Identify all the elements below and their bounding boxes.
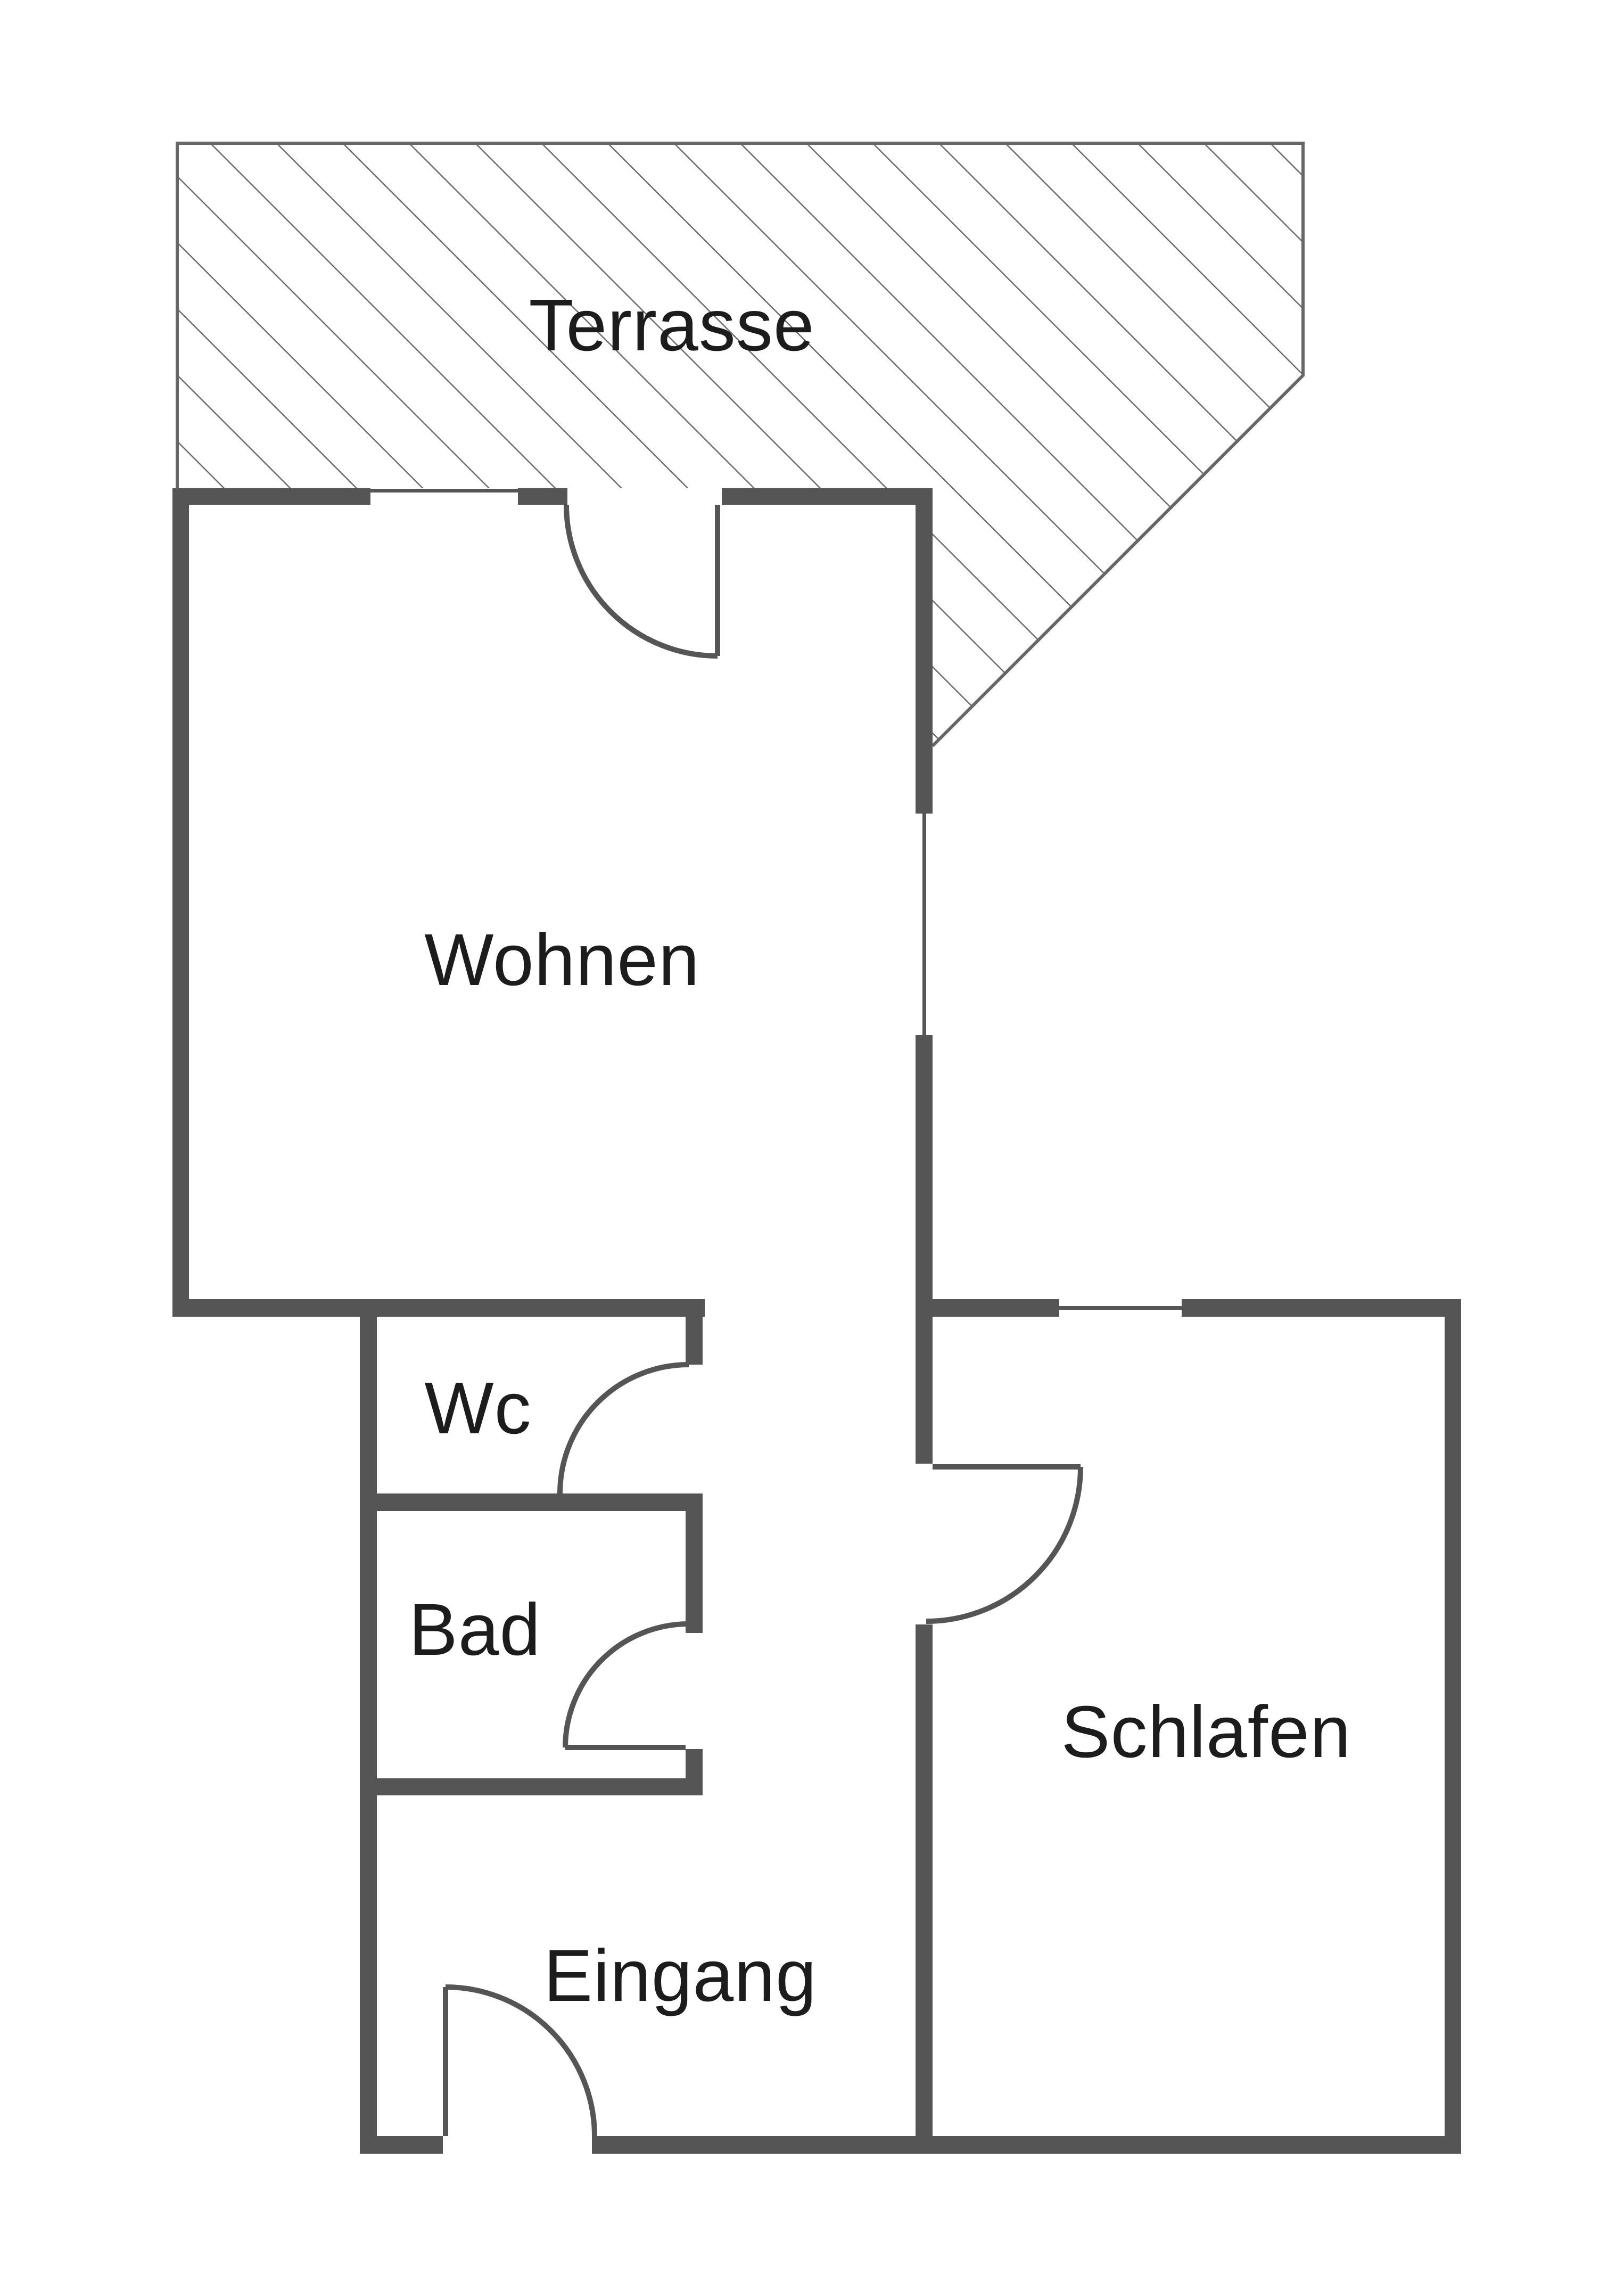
window-wohnen-top <box>370 489 518 493</box>
wall-wohnen-bottom <box>172 1299 705 1317</box>
label-wc: Wc <box>424 1367 531 1449</box>
wall-bottom-right <box>592 2136 1461 2154</box>
label-terrasse: Terrasse <box>529 284 814 366</box>
wall-right <box>1445 1299 1461 2154</box>
label-wohnen: Wohnen <box>424 919 700 1001</box>
wall-bad-right-upper <box>686 1511 703 1633</box>
wall-top-right <box>722 488 933 505</box>
wall-bad-bottom <box>360 1778 703 1795</box>
wall-schlafen-top-left <box>933 1299 1059 1317</box>
wall-schlafen-top-right <box>1182 1299 1461 1317</box>
floor-plan: Terrasse Wohnen Wc Bad Schlafen Eingang <box>0 0 1624 2290</box>
window-wohnen-right <box>922 814 926 1035</box>
wall-central-lower <box>916 1624 933 2154</box>
floor-plan-page: Terrasse Wohnen Wc Bad Schlafen Eingang <box>0 0 1624 2290</box>
wall-wc-right-upper <box>686 1317 703 1365</box>
label-bad: Bad <box>409 1589 541 1671</box>
wall-central-upper <box>916 505 933 814</box>
label-schlafen: Schlafen <box>1061 1691 1351 1773</box>
wall-wc-bottom <box>360 1493 703 1511</box>
wall-bad-right-lower <box>686 1749 703 1795</box>
label-eingang: Eingang <box>543 1935 817 2017</box>
wall-left-block <box>360 1299 377 2154</box>
wall-left-wohnen <box>172 488 189 1317</box>
wall-top-mid <box>518 488 567 505</box>
window-schlafen-top <box>1059 1306 1182 1310</box>
wall-central-middle <box>916 1035 933 1464</box>
wall-top-left <box>172 488 370 505</box>
wall-bottom-left <box>360 2136 443 2154</box>
